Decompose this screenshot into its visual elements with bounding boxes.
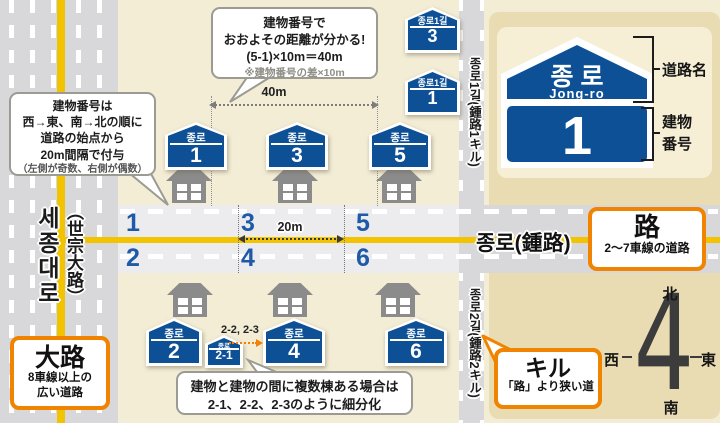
building-number-on-road: 5 (348, 211, 378, 236)
caption-road-name: 道路名 (662, 60, 707, 82)
callout-numbering-line4: 20m間隔で付与 (11, 147, 154, 163)
house-body (381, 295, 415, 317)
building-number-on-road: 2 (118, 246, 148, 271)
legend-daero-box: 大路 8車線以上の 広い道路 (10, 336, 110, 410)
callout-distance-line1: 建物番号で (213, 15, 376, 32)
building-number-on-road: 6 (348, 246, 378, 271)
dimension-line-40m (215, 104, 373, 106)
building-number-on-road: 4 (233, 246, 263, 271)
building-number-on-road: 1 (118, 211, 148, 236)
bracket-road-name-tick (652, 68, 660, 70)
example-road-sign: 종 로 Jong-ro 1 (500, 36, 654, 169)
road-label-jongro: 종로(鍾路) (476, 227, 571, 257)
road-label-sejongdaero-kr: 세종대로 (30, 206, 64, 306)
callout-distance-note: ※建物番号の差×10m (213, 67, 376, 81)
arrowhead-right (372, 101, 379, 109)
house-icon (375, 283, 421, 317)
compass-tick-west (622, 356, 632, 358)
house-body (173, 295, 207, 317)
infographic-root: 40m 20m 1 3 5 2 4 6 종로(鍾路) 세종대로 （世宗大路） 종… (0, 0, 720, 423)
house-icon (166, 169, 212, 203)
label-20m: 20m (264, 220, 316, 234)
road-sign-jongro-5: 종로5 (369, 122, 431, 170)
house-roof (375, 283, 421, 295)
arrowhead-left (209, 101, 216, 109)
legend-ro-desc: 2〜7車線の道路 (592, 241, 702, 256)
legend-gil-title: キル (498, 356, 598, 380)
house-icon (376, 169, 422, 203)
road-sign-jongro-1: 종로1 (165, 122, 227, 170)
road-sign-jongro-3: 종로3 (266, 122, 328, 170)
dimension-line-20m (243, 238, 340, 240)
compass-west: 西 (604, 349, 619, 370)
house-roof (167, 283, 213, 295)
house-roof (272, 169, 318, 181)
legend-daero-desc1: 8車線以上の (14, 371, 106, 385)
example-sign-road-en: Jong-ro (549, 86, 604, 101)
callout-numbering-line2: 西→東、南→北の順に (11, 114, 154, 130)
house-icon (267, 283, 313, 317)
road-label-sejongdaero-ja: （世宗大路） (61, 203, 86, 305)
road-sign-jongro-6: 종로6 (385, 318, 447, 366)
bracket-building-number (641, 107, 654, 161)
subdivision-arrow-line (229, 342, 257, 344)
compass-east: 東 (701, 349, 716, 370)
example-sign-number: 1 (562, 106, 592, 166)
arrowhead-right (337, 235, 344, 243)
road-sign-jongro-2-1: 종로2-1 (205, 335, 243, 368)
house-body (273, 295, 307, 317)
legend-ro-title: 路 (592, 214, 702, 241)
legend-ro-box: 路 2〜7車線の道路 (588, 207, 706, 271)
house-icon (167, 283, 213, 317)
building-number-on-road: 3 (233, 211, 263, 236)
house-icon (272, 169, 318, 203)
label-subdivision-note: 2-2, 2-3 (221, 324, 259, 336)
compass-north: 北 (655, 283, 685, 304)
callout-subdivision-line2: 2-1、2-2、2-3のように細分化 (178, 396, 411, 414)
house-roof (376, 169, 422, 181)
legend-gil-desc: 「路」より狭い道 (498, 380, 598, 394)
callout-distance-line2: おおよその距離が分かる! (213, 32, 376, 49)
compass-south: 南 (656, 397, 686, 418)
callout-distance-line3: (5-1)×10m＝40m (213, 49, 376, 66)
callout-distance: 建物番号で おおよその距離が分かる! (5-1)×10m＝40m ※建物番号の差… (211, 7, 378, 79)
house-roof (166, 169, 212, 181)
legend-gil-box: キル 「路」より狭い道 (494, 348, 602, 409)
house-body (172, 181, 206, 203)
callout-numbering-line3: 道路の始点から (11, 130, 154, 146)
house-roof (267, 283, 313, 295)
subdivision-arrowhead (256, 339, 263, 347)
bracket-building-number-tick (652, 132, 660, 134)
caption-building-line1: 建物 (662, 112, 692, 134)
callout-numbering: 建物番号は 西→東、南→北の順に 道路の始点から 20m間隔で付与 （左側が奇数… (9, 92, 156, 176)
callout-numbering-line1: 建物番号は (11, 98, 154, 114)
caption-building-number: 建物 番号 (662, 112, 692, 156)
house-body (382, 181, 416, 203)
compass-tick-east (690, 356, 702, 358)
callout-numbering-line5: （左側が奇数、右側が偶数） (11, 163, 154, 177)
road-label-jongro1gil: 종로1길(鍾路1キル) (465, 57, 484, 167)
bracket-road-name (633, 36, 654, 103)
callout-subdivision: 建物と建物の間に複数棟ある場合は 2-1、2-2、2-3のように細分化 (176, 371, 413, 415)
house-body (278, 181, 312, 203)
legend-daero-desc2: 広い道路 (14, 386, 106, 400)
legend-daero-title: 大路 (14, 345, 106, 371)
road-sign-jongro1gil-3: 종로1길3 (405, 7, 460, 53)
guide-line-20m-right (344, 205, 345, 273)
caption-building-line2: 番号 (662, 134, 692, 156)
callout-subdivision-line1: 建物と建物の間に複数棟ある場合は (178, 378, 411, 396)
road-sign-jongro-2: 종로2 (146, 318, 202, 366)
road-sign-jongro1gil-1: 종로1길1 (405, 69, 460, 115)
